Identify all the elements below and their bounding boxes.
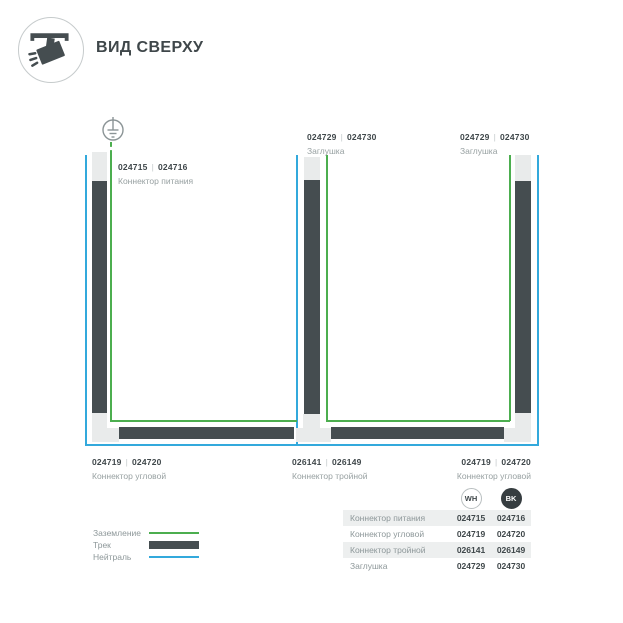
table-row: Коннектор питания 024715 024716 xyxy=(343,510,531,526)
top-view-page: ВИД СВЕРХУ xyxy=(0,0,623,623)
part-code-wh: 024715 xyxy=(451,513,491,523)
part-name: Коннектор тройной xyxy=(343,545,451,555)
label-end-cap-middle: 024729|024730 Заглушка xyxy=(307,126,377,157)
end-cap-middle xyxy=(304,157,320,180)
track-vertical-left xyxy=(92,181,107,413)
divider: | xyxy=(490,132,500,142)
part-name: Коннектор угловой xyxy=(343,529,451,539)
blue-line-swatch xyxy=(149,556,199,558)
table-row: Коннектор угловой 024719 024720 xyxy=(343,526,531,542)
ground-lead-dashed xyxy=(110,142,112,155)
label-corner-connector-left: 024719|024720 Коннектор угловой xyxy=(92,451,166,482)
neutral-line-middle xyxy=(296,155,298,446)
corner-connector-left-arm xyxy=(107,428,119,442)
legend: Заземление Трек Нейтраль xyxy=(93,527,203,563)
neutral-line-bottom xyxy=(85,444,539,446)
table-row: Коннектор тройной 026141 026149 xyxy=(343,542,531,558)
color-badge-wh: WH xyxy=(461,488,482,509)
legend-label: Заземление xyxy=(93,528,149,538)
table-row: Заглушка 024729 024730 xyxy=(343,558,531,574)
part-code-wh: 024729 xyxy=(451,561,491,571)
part-code-bk: 026149 xyxy=(491,545,531,555)
ground-line-bottom-right xyxy=(326,420,510,422)
divider: | xyxy=(122,457,132,467)
power-connector xyxy=(92,152,107,181)
label-corner-connector-right: 024719|024720 Коннектор угловой xyxy=(411,451,531,482)
track-vertical-middle xyxy=(304,180,320,414)
ground-symbol-icon xyxy=(101,115,125,142)
legend-label: Нейтраль xyxy=(93,552,149,562)
parts-table: WH BK Коннектор питания 024715 024716 Ко… xyxy=(343,486,531,574)
track-vertical-right xyxy=(515,181,531,413)
part-code-wh: 026141 xyxy=(451,545,491,555)
legend-label: Трек xyxy=(93,540,149,550)
part-code-wh: 024719 xyxy=(451,529,491,539)
ground-line-bottom-left xyxy=(110,420,297,422)
triple-connector-bar xyxy=(296,428,331,442)
part-code-bk: 024720 xyxy=(491,529,531,539)
label-power-connector: 024715|024716 Коннектор питания xyxy=(118,156,193,187)
corner-connector-right xyxy=(515,413,531,442)
legend-item-track: Трек xyxy=(93,539,203,551)
divider: | xyxy=(491,457,501,467)
end-cap-right xyxy=(515,155,531,181)
part-name: Коннектор питания xyxy=(343,513,451,523)
track-horizontal-left xyxy=(119,427,294,439)
parts-table-header: WH BK xyxy=(343,486,531,510)
label-triple-connector: 026141|026149 Коннектор тройной xyxy=(292,451,368,482)
ground-line-right xyxy=(509,155,511,421)
track-horizontal-right xyxy=(331,427,504,439)
track-bar-swatch xyxy=(149,541,199,549)
legend-item-ground: Заземление xyxy=(93,527,203,539)
green-line-swatch xyxy=(149,532,199,534)
ground-line-left xyxy=(110,155,112,421)
color-badge-bk: BK xyxy=(501,488,522,509)
divider: | xyxy=(148,162,158,172)
ground-line-mid xyxy=(326,155,328,421)
part-code-bk: 024730 xyxy=(491,561,531,571)
triple-connector-stem xyxy=(303,414,320,429)
label-end-cap-right: 024729|024730 Заглушка xyxy=(460,126,530,157)
divider: | xyxy=(322,457,332,467)
part-name: Заглушка xyxy=(343,561,451,571)
divider: | xyxy=(337,132,347,142)
corner-connector-right-arm xyxy=(504,428,515,442)
neutral-line-right xyxy=(537,155,539,446)
corner-connector-left xyxy=(92,413,107,442)
legend-item-neutral: Нейтраль xyxy=(93,551,203,563)
part-code-bk: 024716 xyxy=(491,513,531,523)
neutral-line-left xyxy=(85,155,87,446)
